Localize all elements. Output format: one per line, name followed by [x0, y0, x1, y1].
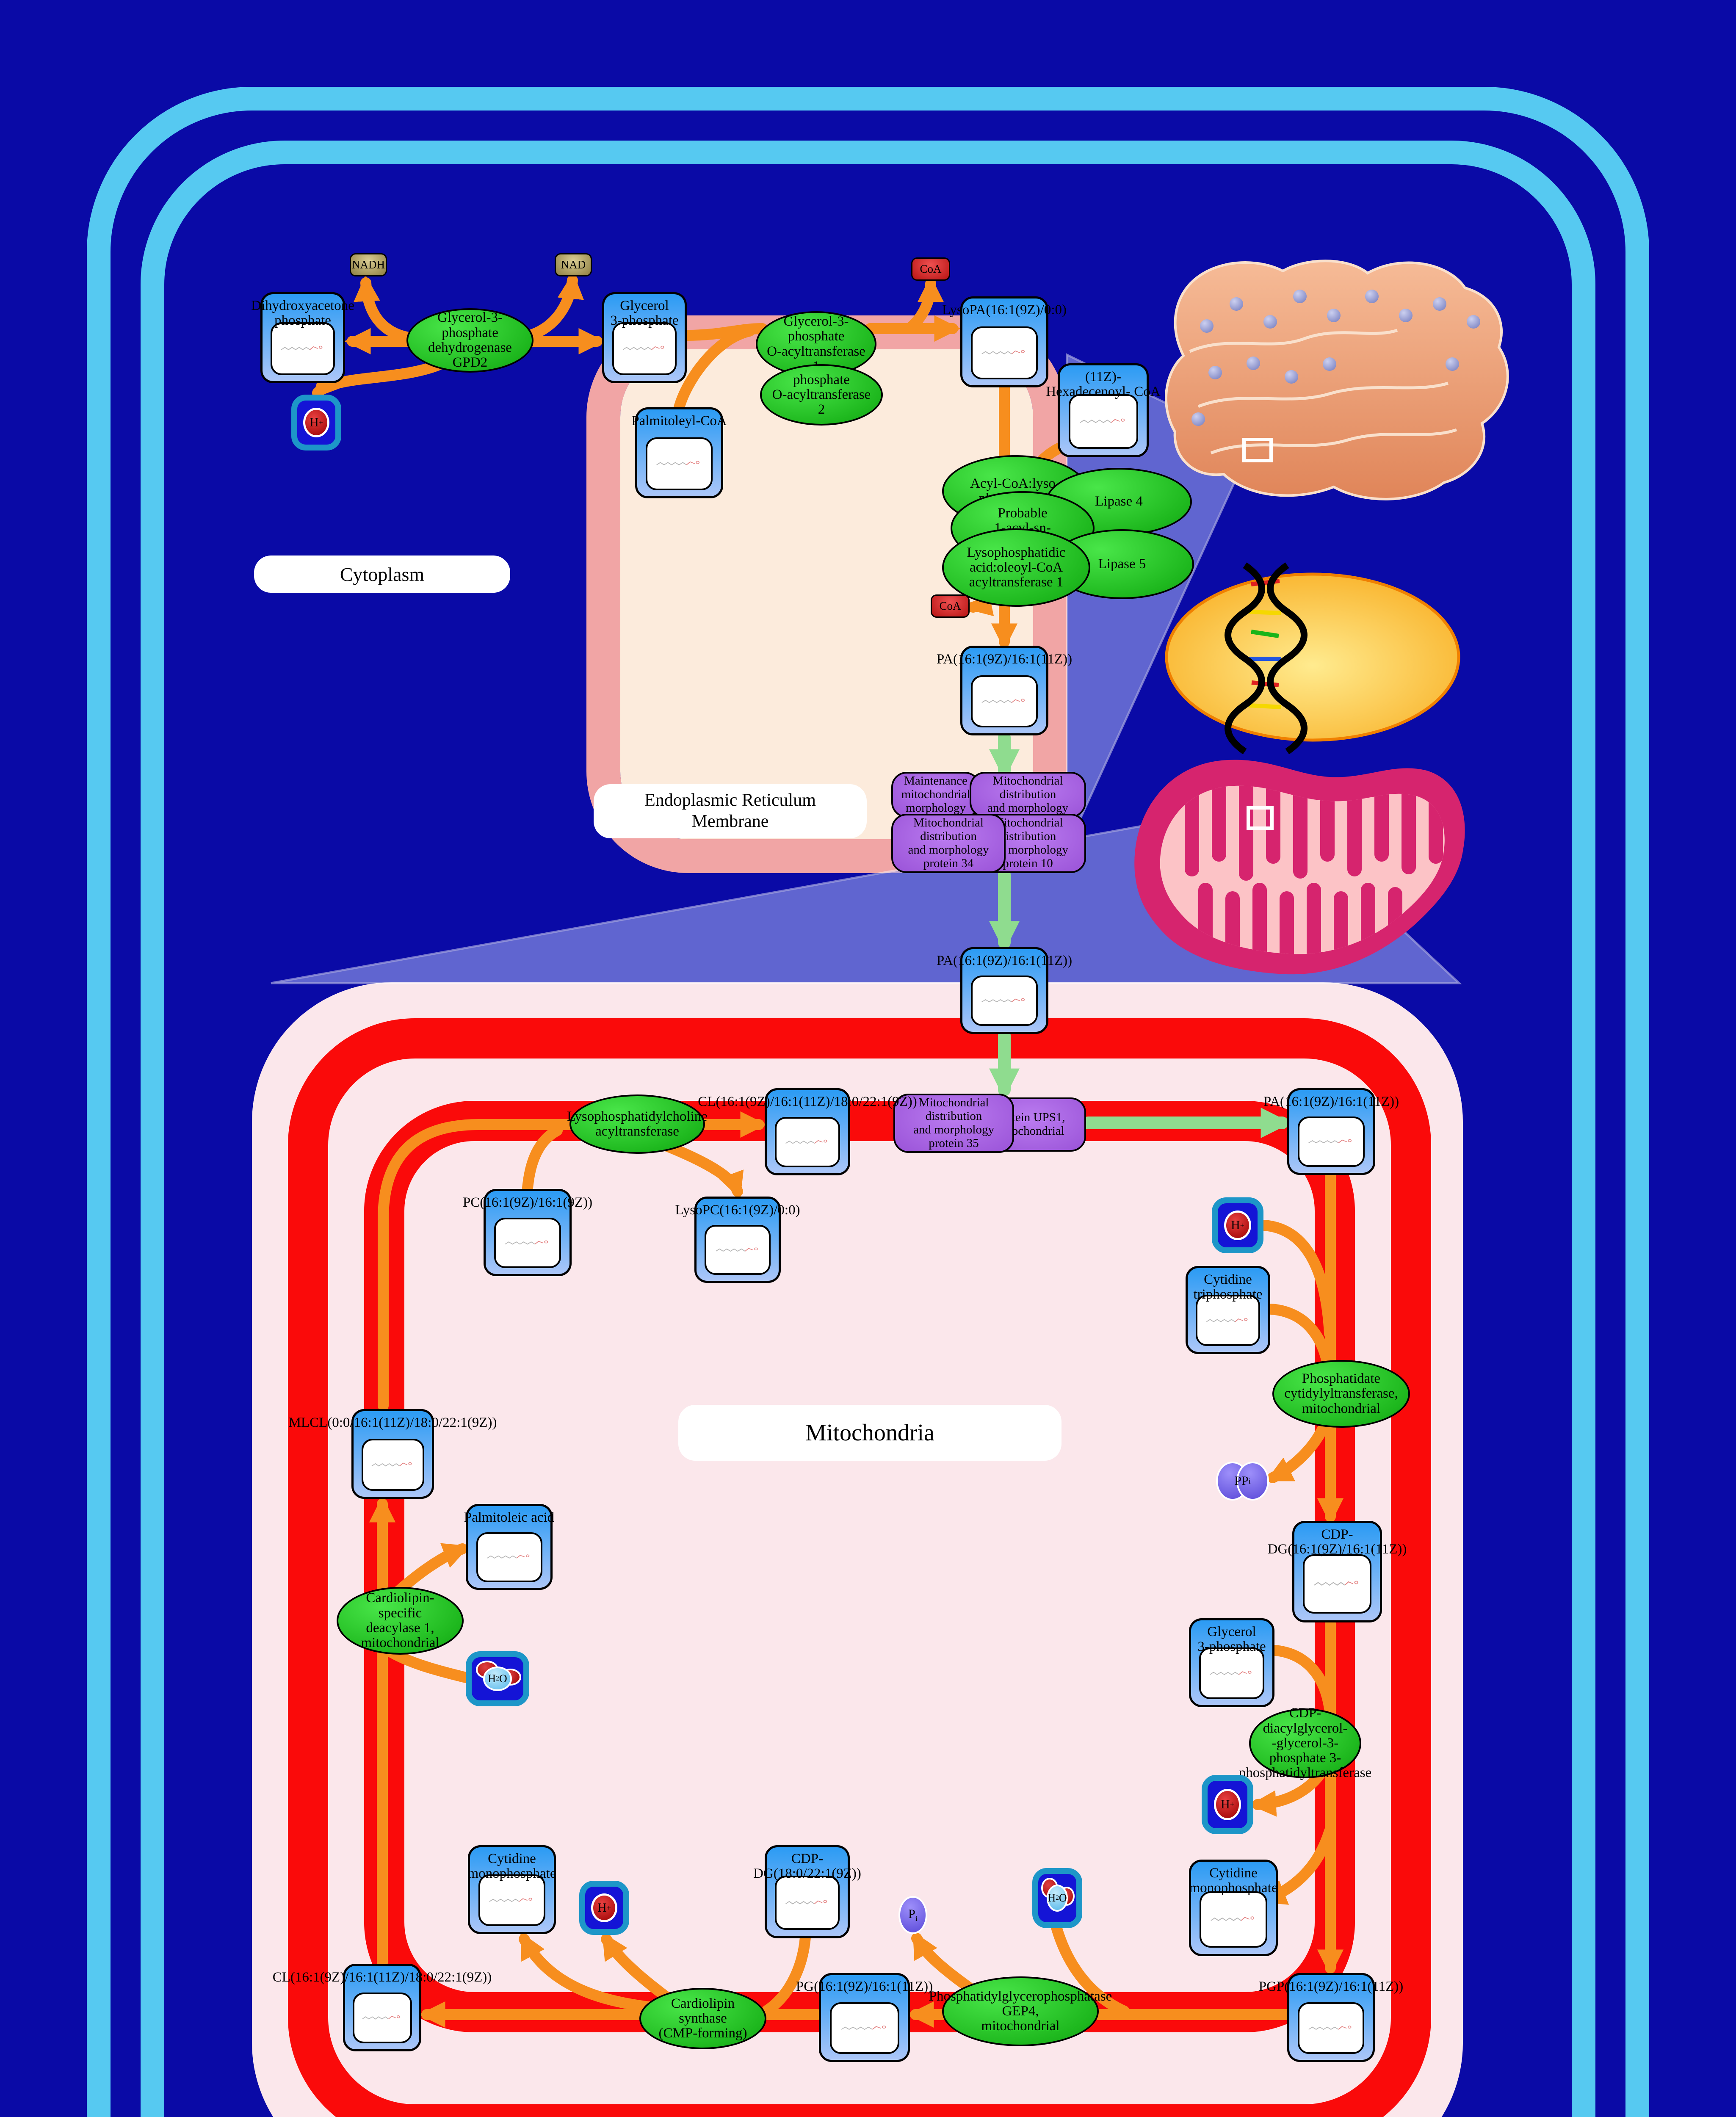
- chemical-structure: [978, 989, 1030, 1012]
- chemical-structure: [486, 1889, 538, 1912]
- cofactor-h-plus-right-2-symbol: H+: [1214, 1789, 1241, 1821]
- metabolite-cdp-dg-bottom-label: CDP- DG(18:0/22:1(9Z)): [753, 1852, 861, 1881]
- metabolite-pa-intermembrane-structure: [971, 976, 1038, 1026]
- metabolite-pa-er[interactable]: PA(16:1(9Z)/16:1(11Z)): [960, 646, 1048, 735]
- chemical-structure: [712, 1239, 763, 1261]
- metabolite-mlcl[interactable]: MLCL(0:0/16:1(11Z)/18:0/22:1(9Z)): [351, 1409, 434, 1499]
- metabolite-pgp-label: PGP(16:1(9Z)/16:1(11Z)): [1259, 1979, 1404, 1994]
- enzyme-cardiolipin-specific-deacylase-1[interactable]: Cardiolipin- specific deacylase 1, mitoc…: [337, 1587, 464, 1655]
- metabolite-cmp-right[interactable]: Cytidine monophosphate: [1189, 1860, 1278, 1956]
- enzyme-gpat2[interactable]: phosphate O-acyltransferase 2: [760, 364, 883, 426]
- chemical-structure: [782, 1890, 832, 1915]
- metabolite-lysopc-label: LysoPC(16:1(9Z)/0:0): [675, 1203, 800, 1218]
- metabolite-pa-er-structure: [971, 675, 1038, 727]
- chemical-structure: [838, 2017, 892, 2040]
- metabolite-lysopa-label: LysoPA(16:1(9Z)/0:0): [942, 303, 1067, 318]
- cofactor-h-plus-bottom[interactable]: H+: [579, 1881, 629, 1935]
- cofactor-h-plus-right-1-symbol: H+: [1224, 1211, 1252, 1240]
- metabolite-mlcl-label: MLCL(0:0/16:1(11Z)/18:0/22:1(9Z)): [289, 1415, 497, 1430]
- cofactor-h2o-left[interactable]: H2O: [466, 1651, 529, 1706]
- metabolite-palmitoleyl-coa-label: Palmitoleyl-CoA: [631, 414, 727, 428]
- chemical-structure: [978, 341, 1030, 365]
- metabolite-pa-er-label: PA(16:1(9Z)/16:1(11Z)): [937, 652, 1072, 667]
- chemical-structure: [484, 1546, 535, 1568]
- metabolite-lysopc-structure: [705, 1225, 770, 1275]
- metabolite-cl-top[interactable]: CL(16:1(9Z)/16:1(11Z)/18:0/22:1(9Z)): [765, 1088, 850, 1175]
- metabolite-cl-bottom-structure: [353, 1993, 412, 2043]
- metabolite-pa-matrix-label: PA(16:1(9Z)/16:1(11Z)): [1263, 1094, 1399, 1109]
- cofactor-coa-1-label: CoA: [920, 263, 941, 276]
- metabolite-cdp-dg-right-structure: [1303, 1554, 1371, 1614]
- metabolite-pc-label: PC(16:1(9Z)/16:1(9Z)): [463, 1195, 592, 1210]
- metabolite-palmitoleic-acid[interactable]: Palmitoleic acid: [466, 1504, 553, 1590]
- enzyme-lysophosphatidylcholine-acyltransferase[interactable]: Lysophosphatidylcholine acyltransferase: [569, 1094, 705, 1154]
- metabolite-pg-label: PG(16:1(9Z)/16:1(11Z)): [796, 1979, 933, 1994]
- chemical-structure: [1305, 2017, 1357, 2040]
- metabolite-pa-intermembrane[interactable]: PA(16:1(9Z)/16:1(11Z)): [960, 947, 1048, 1034]
- metabolite-glycerol-3-phosphate-mito[interactable]: Glycerol 3-phosphate: [1189, 1618, 1274, 1707]
- er-membrane-label: Endoplasmic Reticulum Membrane: [594, 784, 867, 838]
- chemical-structure: [782, 1131, 832, 1154]
- metabolite-palmitoleyl-coa-structure: [646, 437, 713, 490]
- metabolite-hexadecenoyl-coa[interactable]: (11Z)- Hexadecenoyl- CoA: [1058, 363, 1149, 457]
- enzyme-cdp-dag-glycerol-3-phosphate-phosphatidyltransferase-label: CDP- diacylglycerol- -glycerol-3- phosph…: [1239, 1706, 1371, 1780]
- metabolite-ctp[interactable]: Cytidine triphosphate: [1186, 1266, 1270, 1354]
- enzyme-lipase-5-label: Lipase 5: [1098, 557, 1146, 572]
- metabolite-pa-matrix-structure: [1298, 1117, 1365, 1167]
- chemical-structure: [1207, 1907, 1260, 1932]
- metabolite-cdp-dg-right[interactable]: CDP- DG(16:1(9Z)/16:1(11Z)): [1292, 1521, 1382, 1622]
- metabolite-ctp-label: Cytidine triphosphate: [1193, 1272, 1262, 1302]
- enzyme-cardiolipin-synthase-label: Cardiolipin synthase (CMP-forming): [659, 1996, 747, 2041]
- cofactor-h-plus-right-2[interactable]: H+: [1202, 1775, 1253, 1834]
- metabolite-cmp-bottom-label: Cytidine monophosphate: [468, 1852, 556, 1881]
- cofactor-nadh[interactable]: NADH: [350, 253, 387, 276]
- cofactor-nad-label: NAD: [561, 258, 586, 271]
- metabolite-palmitoleic-acid-structure: [476, 1532, 542, 1582]
- enzyme-phosphatidate-cytidylyltransferase[interactable]: Phosphatidate cytidylyltransferase, mito…: [1272, 1360, 1410, 1428]
- cofactor-coa-2[interactable]: CoA: [931, 594, 970, 618]
- pathway-canvas: Dihydroxyacetone phosphateNADHNADH+Glyce…: [0, 0, 1736, 2117]
- metabolite-pa-matrix[interactable]: PA(16:1(9Z)/16:1(11Z)): [1287, 1088, 1375, 1175]
- enzyme-gpd2[interactable]: Glycerol-3- phosphate dehydrogenase GPD2: [406, 308, 534, 373]
- cofactor-h-plus-bottom-symbol: H+: [591, 1893, 617, 1922]
- metabolite-hexadecenoyl-coa-structure: [1069, 394, 1138, 449]
- chemical-structure: [1305, 1130, 1357, 1153]
- metabolite-cmp-bottom[interactable]: Cytidine monophosphate: [468, 1845, 556, 1934]
- protein-maintenance-mito-morphology[interactable]: Maintenance mitochondrial morphology: [891, 772, 980, 818]
- metabolite-pa-intermembrane-label: PA(16:1(9Z)/16:1(11Z)): [937, 953, 1072, 968]
- enzyme-lipase-4-label: Lipase 4: [1095, 494, 1143, 509]
- metabolite-pg-structure: [830, 2002, 899, 2054]
- cofactor-nadh-label: NADH: [352, 258, 385, 271]
- metabolite-glycerol-3-phosphate-mito-structure: [1199, 1647, 1264, 1699]
- protein-mdm34-label: Mitochondrial distribution and morpholog…: [908, 816, 989, 871]
- chemical-structure: [1203, 1309, 1253, 1332]
- metabolite-dhap-structure: [271, 322, 335, 375]
- metabolite-cl-top-label: CL(16:1(9Z)/16:1(11Z)/18:0/22:1(9Z)): [698, 1094, 917, 1109]
- enzyme-gep4-label: Phosphatidylglycerophosphatase GEP4, mit…: [929, 1989, 1112, 2034]
- metabolite-hexadecenoyl-coa-label: (11Z)- Hexadecenoyl- CoA: [1046, 370, 1160, 399]
- metabolite-dhap-label: Dihydroxyacetone phosphate: [251, 298, 354, 328]
- protein-mdm35-label: Mitochondrial distribution and morpholog…: [913, 1096, 994, 1150]
- metabolite-cl-bottom-label: CL(16:1(9Z)/16:1(11Z)/18:0/22:1(9Z)): [273, 1970, 492, 1985]
- chemical-structure: [1076, 409, 1131, 434]
- metabolite-glycerol-3-phosphate[interactable]: Glycerol 3-phosphate: [602, 292, 687, 383]
- chemical-structure: [1310, 1570, 1364, 1597]
- cofactor-coa-2-label: CoA: [939, 600, 961, 613]
- metabolite-glycerol-3-phosphate-structure: [612, 322, 677, 375]
- chemical-structure: [619, 337, 669, 360]
- enzyme-gep4[interactable]: Phosphatidylglycerophosphatase GEP4, mit…: [942, 1976, 1099, 2046]
- cofactor-h2o-right-symbol: H2O: [1047, 1885, 1068, 1912]
- cofactor-pi-symbol: Pi: [908, 1907, 918, 1923]
- chemical-structure: [978, 690, 1030, 713]
- metabolite-cl-bottom[interactable]: CL(16:1(9Z)/16:1(11Z)/18:0/22:1(9Z)): [343, 1964, 421, 2051]
- cofactor-ppi[interactable]: PPi: [1216, 1462, 1269, 1501]
- metabolite-cl-top-structure: [775, 1117, 840, 1168]
- cofactor-h2o-left-symbol: H2O: [483, 1667, 512, 1691]
- cofactor-ppi-symbol: PPi: [1216, 1462, 1269, 1501]
- chemical-structure: [359, 2006, 405, 2029]
- metabolite-cdp-dg-bottom[interactable]: CDP- DG(18:0/22:1(9Z)): [765, 1845, 850, 1938]
- cofactor-h2o-right[interactable]: H2O: [1032, 1868, 1082, 1928]
- cofactor-nad[interactable]: NAD: [555, 253, 592, 276]
- protein-mdm[interactable]: Mitochondrial distribution and morpholog…: [970, 772, 1086, 818]
- metabolite-mlcl-structure: [362, 1439, 424, 1491]
- cytoplasm-label: Cytoplasm: [254, 556, 510, 593]
- enzyme-cardiolipin-specific-deacylase-1-label: Cardiolipin- specific deacylase 1, mitoc…: [361, 1591, 439, 1650]
- metabolite-cdp-dg-bottom-structure: [775, 1876, 840, 1930]
- chemical-structure: [501, 1232, 553, 1255]
- cofactor-h-plus-right-1[interactable]: H+: [1212, 1197, 1263, 1253]
- metabolite-pc[interactable]: PC(16:1(9Z)/16:1(9Z)): [484, 1189, 572, 1276]
- protein-mdm-label: Mitochondrial distribution and morpholog…: [987, 774, 1068, 815]
- metabolite-palmitoleyl-coa[interactable]: Palmitoleyl-CoA: [635, 407, 723, 498]
- enzyme-phosphatidate-cytidylyltransferase-label: Phosphatidate cytidylyltransferase, mito…: [1284, 1371, 1398, 1416]
- chemical-structure: [368, 1453, 417, 1476]
- cofactor-coa-1[interactable]: CoA: [911, 257, 950, 281]
- metabolite-cmp-right-label: Cytidine monophosphate: [1189, 1866, 1278, 1895]
- enzyme-cardiolipin-synthase[interactable]: Cardiolipin synthase (CMP-forming): [639, 1988, 766, 2049]
- enzyme-cdp-dag-glycerol-3-phosphate-phosphatidyltransferase[interactable]: CDP- diacylglycerol- -glycerol-3- phosph…: [1249, 1708, 1361, 1778]
- enzyme-gpd2-label: Glycerol-3- phosphate dehydrogenase GPD2: [428, 310, 512, 370]
- metabolite-palmitoleic-acid-label: Palmitoleic acid: [464, 1510, 555, 1525]
- metabolite-pg[interactable]: PG(16:1(9Z)/16:1(11Z)): [819, 1973, 910, 2062]
- metabolite-lysopc[interactable]: LysoPC(16:1(9Z)/0:0): [694, 1197, 781, 1283]
- chemical-structure: [653, 452, 705, 475]
- metabolite-pc-structure: [494, 1218, 561, 1269]
- metabolite-dhap[interactable]: Dihydroxyacetone phosphate: [260, 292, 345, 383]
- metabolite-cmp-right-structure: [1200, 1891, 1267, 1948]
- metabolite-cmp-bottom-structure: [478, 1874, 545, 1926]
- enzyme-gpat2-label: phosphate O-acyltransferase 2: [772, 373, 871, 417]
- chemical-structure: [1206, 1662, 1257, 1685]
- protein-mdm34[interactable]: Mitochondrial distribution and morpholog…: [891, 814, 1006, 873]
- enzyme-lpaat1-label: Lysophosphatidic acid:oleoyl-CoA acyltra…: [967, 545, 1066, 590]
- metabolite-lysopa-structure: [971, 326, 1038, 379]
- metabolite-pgp-structure: [1298, 2002, 1365, 2054]
- protein-maintenance-mito-morphology-label: Maintenance mitochondrial morphology: [901, 774, 970, 815]
- cofactor-h-plus-cytoplasm[interactable]: H+: [291, 395, 341, 450]
- metabolite-ctp-structure: [1196, 1295, 1260, 1346]
- metabolite-cdp-dg-right-label: CDP- DG(16:1(9Z)/16:1(11Z)): [1268, 1527, 1407, 1556]
- cofactor-pi[interactable]: Pi: [898, 1896, 927, 1934]
- mitochondria-label: Mitochondria: [678, 1405, 1062, 1461]
- metabolite-glycerol-3-phosphate-label: Glycerol 3-phosphate: [610, 298, 678, 328]
- enzyme-lysophosphatidylcholine-acyltransferase-label: Lysophosphatidylcholine acyltransferase: [567, 1109, 708, 1139]
- chemical-structure: [278, 337, 328, 360]
- metabolite-glycerol-3-phosphate-mito-label: Glycerol 3-phosphate: [1197, 1625, 1266, 1654]
- cofactor-h-plus-cytoplasm-symbol: H+: [303, 408, 329, 437]
- metabolite-pgp[interactable]: PGP(16:1(9Z)/16:1(11Z)): [1287, 1973, 1375, 2062]
- metabolite-lysopa[interactable]: LysoPA(16:1(9Z)/0:0): [960, 296, 1048, 387]
